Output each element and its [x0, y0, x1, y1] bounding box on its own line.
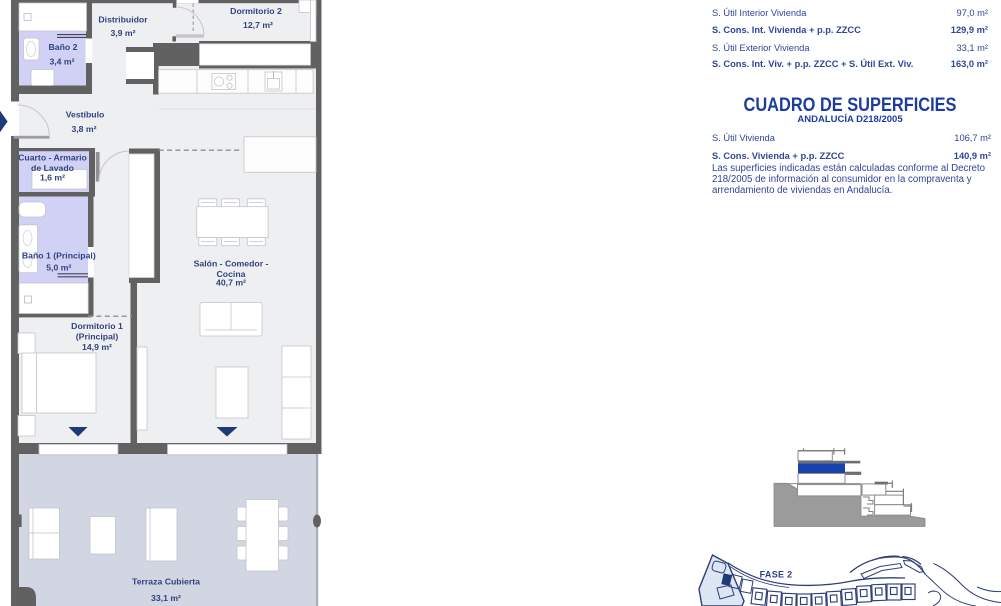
- svg-text:Cuarto - Armario: Cuarto - Armario: [18, 153, 87, 163]
- svg-text:Terraza Cubierta: Terraza Cubierta: [132, 577, 200, 587]
- svg-text:1,6 m²: 1,6 m²: [40, 173, 65, 183]
- svg-text:Baño 1 (Principal): Baño 1 (Principal): [22, 251, 96, 261]
- svg-text:Salón - Comedor -: Salón - Comedor -: [194, 259, 269, 269]
- svg-text:FASE 2: FASE 2: [760, 570, 793, 580]
- svg-text:33,1 m²: 33,1 m²: [151, 593, 181, 603]
- svg-text:Distribuidor: Distribuidor: [98, 15, 148, 25]
- svg-text:Dormitorio 2: Dormitorio 2: [230, 6, 282, 16]
- svg-text:12,7 m²: 12,7 m²: [243, 20, 273, 30]
- svg-text:de Lavado: de Lavado: [31, 163, 74, 173]
- svg-text:(Principal): (Principal): [76, 332, 119, 342]
- svg-text:3,9 m²: 3,9 m²: [110, 28, 135, 38]
- svg-text:3,4 m²: 3,4 m²: [49, 57, 74, 67]
- svg-text:40,7 m²: 40,7 m²: [216, 278, 246, 288]
- svg-text:Dormitorio 1: Dormitorio 1: [71, 321, 123, 331]
- svg-text:5,0 m²: 5,0 m²: [46, 263, 71, 273]
- svg-text:Vestíbulo: Vestíbulo: [66, 110, 105, 120]
- svg-text:14,9 m²: 14,9 m²: [82, 342, 112, 352]
- svg-text:3,8 m²: 3,8 m²: [71, 124, 96, 134]
- svg-text:Baño 2: Baño 2: [49, 42, 78, 52]
